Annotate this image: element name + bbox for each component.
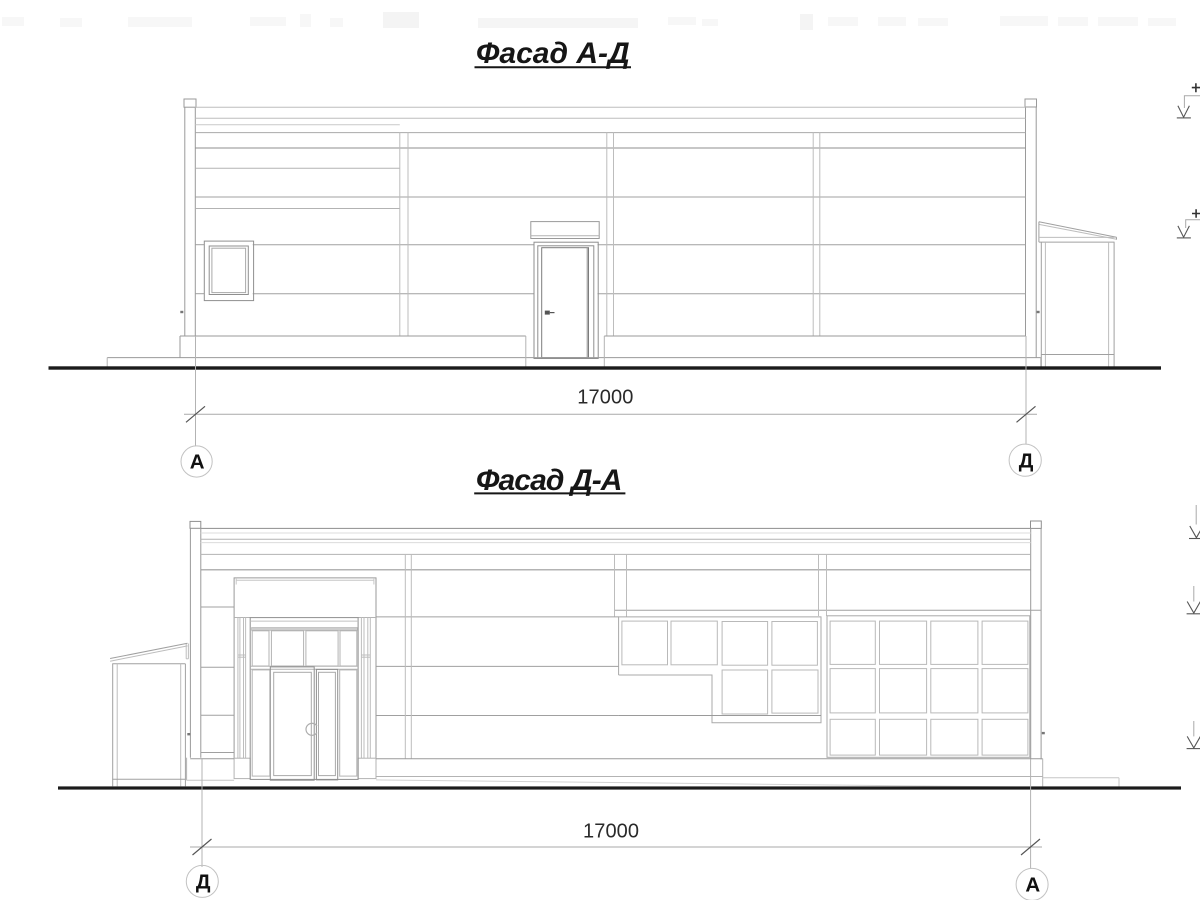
svg-text:А: А [1025, 874, 1040, 897]
svg-text:Д: Д [196, 871, 211, 894]
svg-text:А: А [190, 451, 205, 474]
svg-text:Фасад Д-А: Фасад Д-А [476, 464, 622, 497]
svg-text:Фасад А-Д: Фасад А-Д [476, 37, 630, 70]
svg-text:17000: 17000 [577, 387, 633, 409]
svg-text:Д: Д [1019, 449, 1034, 472]
svg-text:17000: 17000 [583, 820, 639, 842]
